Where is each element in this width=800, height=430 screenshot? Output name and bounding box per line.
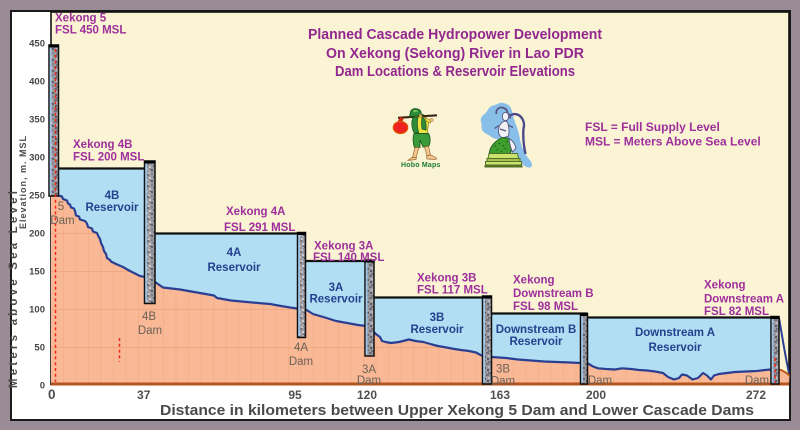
svg-text:Dam: Dam bbox=[138, 325, 162, 337]
svg-text:Downstream B: Downstream B bbox=[513, 288, 594, 300]
svg-text:37: 37 bbox=[137, 388, 151, 402]
svg-text:FSL 98 MSL: FSL 98 MSL bbox=[513, 301, 578, 313]
svg-text:300: 300 bbox=[29, 153, 45, 164]
svg-text:MSL = Meters Above Sea Level: MSL = Meters Above Sea Level bbox=[585, 135, 761, 149]
svg-text:272: 272 bbox=[746, 388, 766, 402]
svg-text:Dam: Dam bbox=[357, 375, 381, 387]
svg-text:3B: 3B bbox=[430, 312, 445, 324]
svg-text:FSL = Full Supply Level: FSL = Full Supply Level bbox=[585, 120, 720, 134]
svg-text:Elevation, m. MSL: Elevation, m. MSL bbox=[18, 135, 28, 229]
svg-text:4A: 4A bbox=[227, 247, 242, 259]
svg-text:Dam: Dam bbox=[50, 215, 74, 227]
svg-text:Dam: Dam bbox=[491, 376, 515, 388]
svg-text:FSL 291 MSL: FSL 291 MSL bbox=[224, 222, 295, 234]
svg-text:FSL 200 MSL: FSL 200 MSL bbox=[73, 152, 144, 164]
svg-text:Downstream A: Downstream A bbox=[704, 294, 784, 306]
svg-text:Xekong 3A: Xekong 3A bbox=[314, 241, 373, 253]
svg-text:350: 350 bbox=[29, 115, 45, 126]
svg-text:4B: 4B bbox=[142, 311, 156, 323]
svg-text:50: 50 bbox=[34, 343, 45, 354]
svg-text:0: 0 bbox=[48, 387, 56, 402]
svg-text:4B: 4B bbox=[105, 190, 120, 202]
svg-text:FSL 140 MSL: FSL 140 MSL bbox=[313, 252, 384, 264]
svg-text:Xekong 4B: Xekong 4B bbox=[73, 139, 132, 151]
svg-text:200: 200 bbox=[29, 229, 45, 240]
svg-text:3A: 3A bbox=[329, 282, 344, 294]
svg-text:100: 100 bbox=[29, 305, 45, 316]
svg-text:0: 0 bbox=[40, 381, 45, 392]
svg-text:Xekong 4A: Xekong 4A bbox=[226, 206, 285, 218]
svg-text:Downstream B: Downstream B bbox=[496, 324, 577, 336]
svg-text:Dam: Dam bbox=[588, 375, 612, 387]
svg-text:163: 163 bbox=[490, 388, 510, 402]
svg-text:Reservoir: Reservoir bbox=[85, 202, 139, 214]
svg-text:Xekong 5: Xekong 5 bbox=[55, 13, 107, 25]
svg-text:FSL 82 MSL: FSL 82 MSL bbox=[704, 306, 769, 318]
svg-text:450: 450 bbox=[29, 39, 45, 50]
svg-text:Dam: Dam bbox=[745, 375, 769, 387]
svg-text:Distance in kilometers between: Distance in kilometers between Upper Xek… bbox=[160, 402, 754, 419]
svg-text:3B: 3B bbox=[496, 364, 510, 376]
svg-text:Dam: Dam bbox=[289, 356, 313, 368]
svg-text:Xekong: Xekong bbox=[704, 280, 746, 292]
svg-text:400: 400 bbox=[29, 77, 45, 88]
svg-text:95: 95 bbox=[288, 388, 302, 402]
svg-text:Reservoir: Reservoir bbox=[410, 324, 464, 336]
svg-text:Reservoir: Reservoir bbox=[207, 262, 261, 274]
svg-text:Hobo Maps: Hobo Maps bbox=[401, 162, 441, 169]
svg-text:FSL 117 MSL: FSL 117 MSL bbox=[417, 285, 488, 297]
svg-text:On Xekong (Sekong) River in La: On Xekong (Sekong) River in Lao PDR bbox=[326, 46, 585, 62]
svg-text:FSL 450 MSL: FSL 450 MSL bbox=[55, 25, 126, 37]
svg-text:Dam Locations & Reservoir Elev: Dam Locations & Reservoir Elevations bbox=[335, 64, 575, 80]
svg-text:Reservoir: Reservoir bbox=[648, 342, 702, 354]
svg-text:200: 200 bbox=[586, 388, 606, 402]
svg-text:4A: 4A bbox=[294, 342, 308, 354]
svg-text:120: 120 bbox=[357, 388, 377, 402]
svg-text:150: 150 bbox=[29, 267, 45, 278]
svg-text:Downstream A: Downstream A bbox=[635, 327, 715, 339]
svg-text:Xekong: Xekong bbox=[513, 275, 555, 287]
svg-text:Xekong 3B: Xekong 3B bbox=[417, 273, 476, 285]
svg-text:Reservoir: Reservoir bbox=[509, 336, 563, 348]
svg-text:Reservoir: Reservoir bbox=[309, 294, 363, 306]
svg-text:5: 5 bbox=[58, 201, 64, 213]
svg-text:250: 250 bbox=[29, 191, 45, 202]
svg-text:Planned Cascade Hydropower Dev: Planned Cascade Hydropower Development bbox=[308, 27, 602, 43]
